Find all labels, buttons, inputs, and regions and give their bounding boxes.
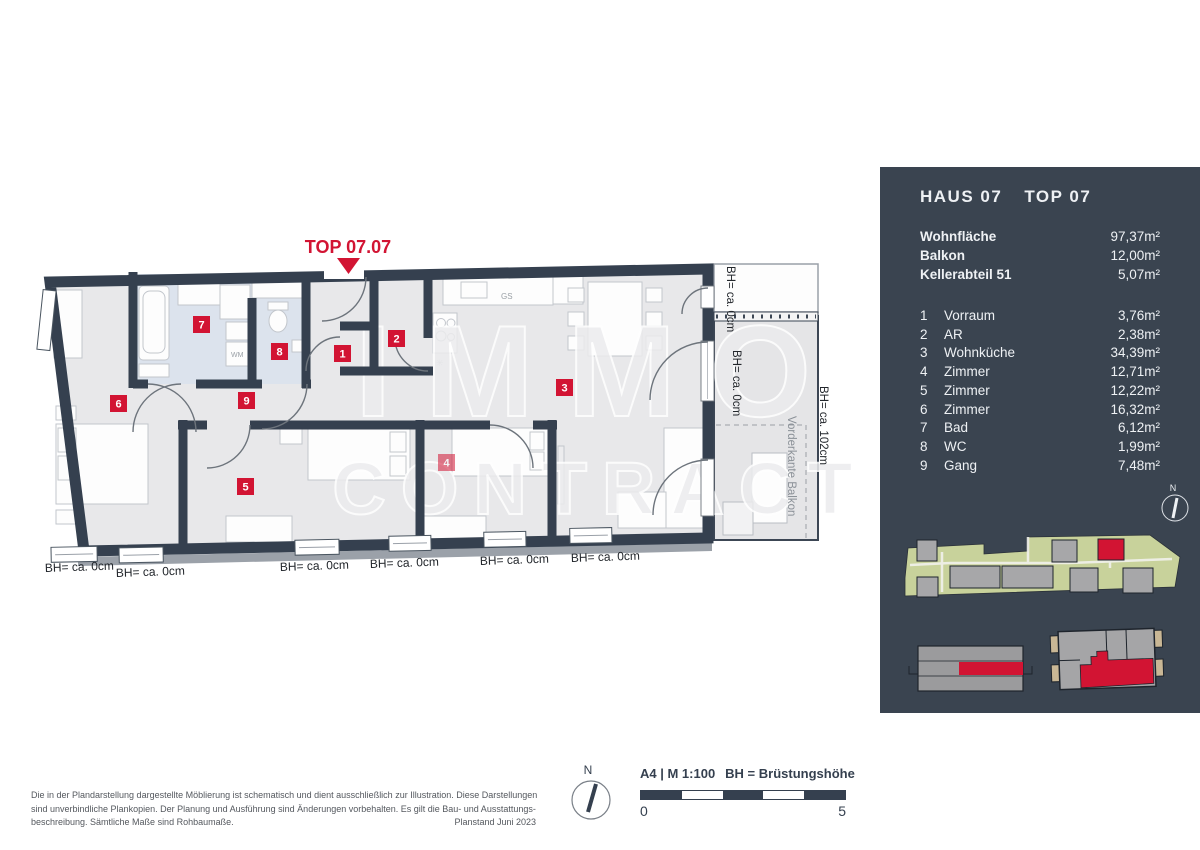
svg-text:4: 4 bbox=[443, 458, 450, 470]
scale-end: 5 bbox=[838, 803, 846, 819]
svg-text:BH= ca. 0cm: BH= ca. 0cm bbox=[116, 564, 185, 580]
balcony-height-label: BH= ca. 102cm bbox=[817, 386, 829, 465]
bh-legend-label: BH = Brüstungshöhe bbox=[725, 766, 855, 781]
plan-date: Planstand Juni 2023 bbox=[454, 816, 536, 830]
svg-text:BH= ca. 0cm: BH= ca. 0cm bbox=[724, 266, 736, 332]
section-diagram bbox=[909, 646, 1032, 691]
svg-text:N: N bbox=[1170, 483, 1177, 493]
kitchen-sink bbox=[461, 282, 487, 298]
svg-text:1: 1 bbox=[339, 349, 345, 361]
north-compass-icon: N bbox=[572, 763, 610, 819]
toilet bbox=[268, 302, 288, 310]
panel-compass-icon: N bbox=[1162, 483, 1188, 521]
svg-text:8: 8 bbox=[276, 347, 282, 359]
svg-text:2: 2 bbox=[393, 334, 399, 346]
scale-box: A4 | M 1:100 BH = Brüstungshöhe 0 5 bbox=[640, 766, 850, 819]
washbasin bbox=[178, 283, 220, 305]
balcony-edge-label: Vorderkante Balkon bbox=[785, 416, 797, 516]
disclaimer-line: beschreibung. Sämtliche Maße sind Rohbau… bbox=[31, 816, 234, 830]
desk-room5 bbox=[226, 516, 292, 542]
svg-text:3: 3 bbox=[561, 383, 567, 395]
svg-text:5: 5 bbox=[242, 482, 248, 494]
svg-text:BH= ca. 0cm: BH= ca. 0cm bbox=[480, 552, 549, 568]
plan-title: TOP 07.07 bbox=[305, 237, 391, 257]
svg-text:9: 9 bbox=[243, 396, 249, 408]
washer-label: WM bbox=[231, 352, 244, 359]
floor-plan-page: GS WM ✳ IMMO CONTRACT bbox=[0, 0, 1200, 850]
scale-bar bbox=[640, 790, 846, 800]
info-panel: HAUS 07 TOP 07 Wohnfläche 97,37m² Balkon… bbox=[880, 167, 1200, 713]
svg-text:BH= ca. 0cm: BH= ca. 0cm bbox=[280, 558, 349, 574]
svg-text:BH= ca. 0cm: BH= ca. 0cm bbox=[730, 350, 742, 416]
scale-start: 0 bbox=[640, 803, 648, 819]
disclaimer-line: Die in der Plandarstellung dargestellte … bbox=[31, 789, 536, 803]
disclaimer: Die in der Plandarstellung dargestellte … bbox=[31, 789, 536, 830]
svg-text:6: 6 bbox=[115, 399, 121, 411]
footprint-diagram bbox=[1050, 628, 1164, 690]
format-scale-label: A4 | M 1:100 bbox=[640, 766, 715, 781]
svg-text:BH= ca. 0cm: BH= ca. 0cm bbox=[370, 555, 439, 571]
svg-text:BH= ca. 0cm: BH= ca. 0cm bbox=[45, 559, 114, 575]
highlighted-building bbox=[1098, 539, 1124, 560]
shower bbox=[220, 285, 250, 319]
panel-graphics: N bbox=[880, 167, 1200, 713]
highlighted-floor bbox=[959, 662, 1023, 675]
site-plan bbox=[905, 535, 1180, 597]
disclaimer-line: sind unverbindliche Plankopien. Der Plan… bbox=[31, 803, 536, 817]
svg-text:N: N bbox=[584, 763, 593, 777]
svg-text:7: 7 bbox=[198, 320, 204, 332]
svg-text:BH= ca. 0cm: BH= ca. 0cm bbox=[571, 549, 640, 565]
